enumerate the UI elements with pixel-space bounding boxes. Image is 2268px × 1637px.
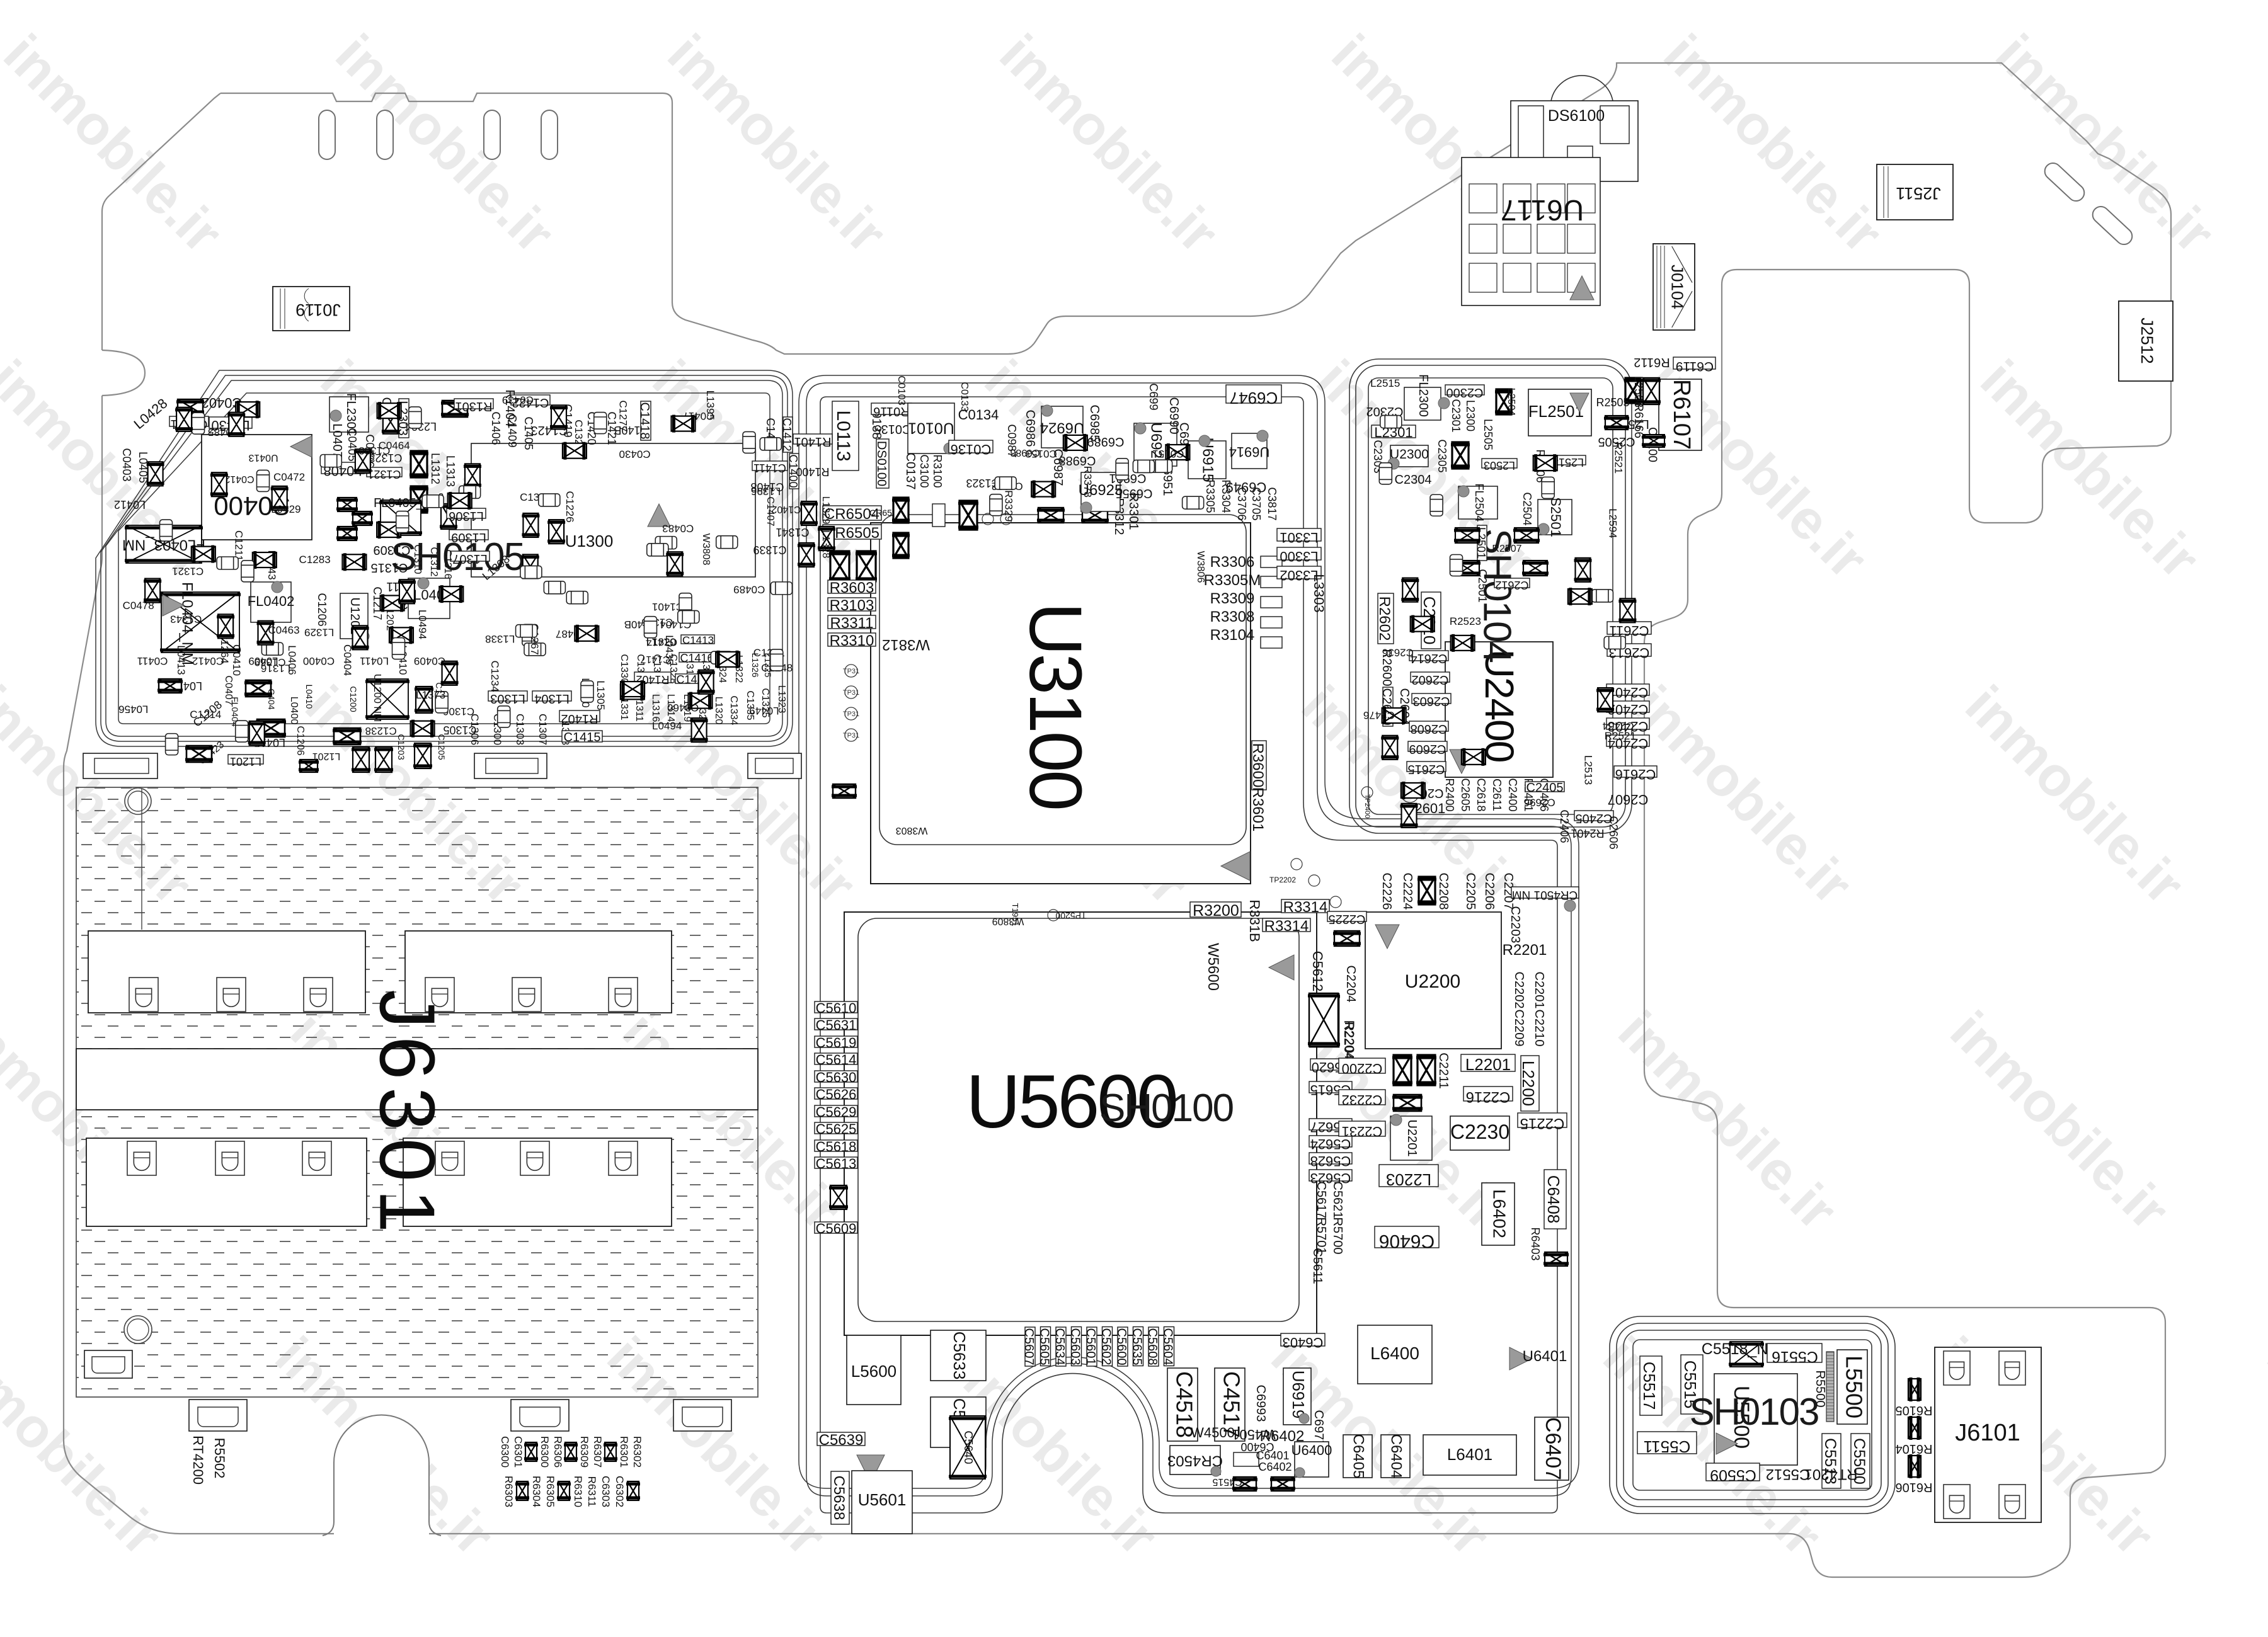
svg-text:R1401: R1401 xyxy=(794,435,832,448)
svg-text:C0133: C0133 xyxy=(959,382,970,411)
svg-text:L1395: L1395 xyxy=(704,391,716,420)
svg-text:C5633: C5633 xyxy=(950,1332,969,1380)
svg-text:C1309: C1309 xyxy=(374,543,411,557)
svg-text:R6310: R6310 xyxy=(572,1476,584,1507)
svg-text:L0494: L0494 xyxy=(652,720,682,732)
svg-text:C1312: C1312 xyxy=(428,547,439,576)
svg-text:C1315: C1315 xyxy=(371,561,408,574)
svg-text:R3309: R3309 xyxy=(1210,590,1255,607)
svg-text:R3200: R3200 xyxy=(1193,902,1239,920)
svg-text:C0103: C0103 xyxy=(896,375,907,405)
svg-text:C2636: C2636 xyxy=(1382,646,1414,658)
svg-text:C404: C404 xyxy=(266,688,277,710)
svg-text:R3329: R3329 xyxy=(1002,490,1014,522)
svg-text:DS0100: DS0100 xyxy=(874,441,888,486)
svg-text:C2400: C2400 xyxy=(1506,778,1519,811)
svg-text:C2224: C2224 xyxy=(1400,873,1414,910)
svg-text:C2607: C2607 xyxy=(1608,792,1649,807)
svg-text:C2605: C2605 xyxy=(1459,778,1472,811)
svg-text:C2231: C2231 xyxy=(1342,1124,1383,1139)
svg-text:C2202: C2202 xyxy=(1512,972,1526,1009)
svg-text:C2215: C2215 xyxy=(1520,1115,1565,1132)
svg-text:C3100: C3100 xyxy=(918,454,931,488)
svg-text:C2616: C2616 xyxy=(1615,767,1656,782)
svg-text:R5700: R5700 xyxy=(1331,1218,1344,1255)
svg-text:C5628: C5628 xyxy=(1310,1153,1351,1169)
svg-text:C3706: C3706 xyxy=(1235,487,1248,520)
svg-text:L2200: L2200 xyxy=(1519,1061,1538,1106)
svg-text:C6406: C6406 xyxy=(1379,1231,1435,1252)
svg-text:R2523: R2523 xyxy=(1450,615,1481,627)
svg-text:U6914: U6914 xyxy=(1229,444,1270,460)
svg-text:FL2300: FL2300 xyxy=(1416,374,1430,417)
svg-text:R1400: R1400 xyxy=(796,465,829,478)
svg-text:L0429: L0429 xyxy=(271,503,301,515)
svg-text:C0460: C0460 xyxy=(667,702,699,714)
svg-text:C2304: C2304 xyxy=(1395,473,1432,487)
svg-text:R2204: R2204 xyxy=(1342,1022,1356,1059)
svg-text:C1409: C1409 xyxy=(506,414,518,447)
svg-text:C2501: C2501 xyxy=(1476,569,1489,602)
svg-text:R6309: R6309 xyxy=(578,1436,590,1468)
svg-text:C5640: C5640 xyxy=(962,1430,975,1464)
svg-text:TP5200: TP5200 xyxy=(1055,911,1086,921)
svg-text:W3812: W3812 xyxy=(882,636,930,653)
svg-text:R5502: R5502 xyxy=(212,1438,227,1479)
svg-text:C0463: C0463 xyxy=(268,624,299,636)
svg-text:R3378: R3378 xyxy=(1082,466,1094,498)
svg-text:C2602: C2602 xyxy=(1412,673,1449,687)
svg-text:C6404: C6404 xyxy=(1388,1434,1405,1479)
svg-text:C2209: C2209 xyxy=(1512,1010,1526,1047)
svg-text:R2201: R2201 xyxy=(1503,942,1547,959)
svg-text:C1214: C1214 xyxy=(190,709,221,721)
svg-text:L1309: L1309 xyxy=(451,530,486,544)
svg-text:C0439: C0439 xyxy=(502,394,534,406)
svg-text:C4515: C4515 xyxy=(1212,1476,1242,1487)
svg-text:C1310: C1310 xyxy=(412,544,423,574)
svg-text:C6993: C6993 xyxy=(1254,1385,1268,1422)
svg-text:C6401: C6401 xyxy=(1256,1449,1289,1462)
svg-text:TP2202: TP2202 xyxy=(1269,876,1296,884)
svg-text:R6303: R6303 xyxy=(503,1476,515,1507)
svg-text:C2618: C2618 xyxy=(1475,778,1487,811)
svg-text:L1329: L1329 xyxy=(820,496,831,525)
svg-text:L1201: L1201 xyxy=(312,751,341,761)
svg-text:J6101: J6101 xyxy=(1955,1420,2020,1446)
svg-text:C2405: C2405 xyxy=(1576,811,1613,825)
svg-text:C6407: C6407 xyxy=(1541,1417,1565,1480)
svg-text:C2203: C2203 xyxy=(1508,906,1522,944)
svg-text:L2201: L2201 xyxy=(1465,1055,1511,1074)
svg-text:R6311: R6311 xyxy=(586,1476,598,1507)
svg-text:C0151: C0151 xyxy=(1152,448,1184,460)
svg-text:C2230: C2230 xyxy=(1450,1121,1509,1143)
svg-text:R6305: R6305 xyxy=(544,1476,556,1507)
svg-text:C2201: C2201 xyxy=(1532,972,1546,1009)
svg-text:C5602: C5602 xyxy=(1099,1328,1113,1366)
svg-text:C0430: C0430 xyxy=(619,448,651,460)
svg-text:L0412: L0412 xyxy=(114,498,146,511)
svg-text:L6401: L6401 xyxy=(1447,1445,1492,1464)
svg-text:C1205: C1205 xyxy=(437,734,447,760)
svg-text:C0411: C0411 xyxy=(137,655,168,667)
svg-text:C2612: C2612 xyxy=(1495,579,1528,591)
svg-text:C6947: C6947 xyxy=(1230,389,1278,408)
svg-text:C1206: C1206 xyxy=(316,593,328,626)
svg-text:L2505: L2505 xyxy=(1482,419,1494,450)
svg-text:R6300: R6300 xyxy=(539,1436,551,1468)
svg-text:C5621: C5621 xyxy=(1331,1182,1344,1219)
svg-text:DS6100: DS6100 xyxy=(1548,107,1605,125)
svg-text:U2200: U2200 xyxy=(1405,971,1460,992)
svg-text:C1413: C1413 xyxy=(682,634,714,646)
svg-text:C2200: C2200 xyxy=(1342,1061,1383,1076)
svg-text:C0410: C0410 xyxy=(231,644,243,676)
svg-text:C5512: C5512 xyxy=(1766,1466,1811,1483)
svg-text:C1206: C1206 xyxy=(295,726,306,755)
svg-text:C5631: C5631 xyxy=(816,1017,857,1033)
svg-text:C1316: C1316 xyxy=(442,549,453,579)
svg-text:TP31: TP31 xyxy=(843,668,859,675)
svg-text:C6955: C6955 xyxy=(1116,486,1153,500)
svg-text:C1339: C1339 xyxy=(753,544,786,556)
svg-text:R1301: R1301 xyxy=(455,399,493,413)
svg-text:FL2504: FL2504 xyxy=(1473,483,1486,522)
svg-text:TP2400: TP2400 xyxy=(1363,794,1371,819)
svg-text:C5617: C5617 xyxy=(1314,1182,1328,1219)
svg-text:C5626: C5626 xyxy=(816,1087,857,1102)
svg-text:R3305: R3305 xyxy=(1204,479,1217,513)
svg-text:C3817: C3817 xyxy=(1266,487,1278,520)
svg-text:R3314: R3314 xyxy=(1264,918,1309,935)
svg-text:C0404: C0404 xyxy=(341,644,353,676)
svg-text:R6104: R6104 xyxy=(1896,1442,1933,1456)
svg-text:C5625: C5625 xyxy=(816,1121,857,1137)
svg-text:R2521: R2521 xyxy=(1612,442,1624,474)
svg-text:C5618: C5618 xyxy=(816,1139,857,1155)
svg-text:J0104: J0104 xyxy=(1668,265,1687,309)
svg-text:C0400: C0400 xyxy=(303,655,335,667)
svg-text:R3601: R3601 xyxy=(1249,787,1266,832)
svg-text:L2300: L2300 xyxy=(1464,400,1477,431)
svg-text:C2205: C2205 xyxy=(1463,873,1477,910)
svg-text:C5635: C5635 xyxy=(1130,1328,1144,1366)
svg-text:R3311: R3311 xyxy=(830,615,874,632)
svg-text:R6112: R6112 xyxy=(1634,355,1669,369)
svg-text:C1226: C1226 xyxy=(564,491,576,522)
svg-text:L1338: L1338 xyxy=(485,633,515,645)
svg-text:R2521: R2521 xyxy=(1605,730,1636,742)
svg-text:L1313: L1313 xyxy=(444,455,457,487)
svg-text:C0483: C0483 xyxy=(662,523,694,535)
svg-text:L2513: L2513 xyxy=(1582,755,1594,785)
svg-text:R3100: R3100 xyxy=(931,454,944,488)
svg-text:L1304: L1304 xyxy=(534,692,570,705)
svg-text:L2504: L2504 xyxy=(1506,388,1516,416)
svg-text:C1321: C1321 xyxy=(367,468,401,481)
svg-text:C0412: C0412 xyxy=(224,474,254,484)
svg-text:C5604: C5604 xyxy=(1161,1328,1175,1366)
svg-text:C5634: C5634 xyxy=(1053,1328,1067,1366)
svg-text:U1300: U1300 xyxy=(565,532,614,550)
svg-text:C1406: C1406 xyxy=(490,411,502,445)
svg-text:R6304: R6304 xyxy=(530,1476,542,1507)
svg-text:C5517: C5517 xyxy=(1640,1362,1659,1410)
svg-text:C2208: C2208 xyxy=(1436,873,1450,910)
svg-text:L3300: L3300 xyxy=(1280,549,1318,564)
svg-text:RT4201: RT4201 xyxy=(1804,1466,1858,1483)
svg-text:C0136: C0136 xyxy=(951,442,992,457)
svg-text:C6302: C6302 xyxy=(614,1476,626,1507)
svg-text:C5601: C5601 xyxy=(1084,1328,1097,1366)
svg-text:L1373: L1373 xyxy=(416,689,445,701)
svg-text:L2203: L2203 xyxy=(1386,1170,1431,1189)
svg-text:R2602: R2602 xyxy=(1376,596,1393,641)
svg-text:RT4200: RT4200 xyxy=(190,1435,206,1485)
svg-text:L1329: L1329 xyxy=(304,626,334,638)
svg-text:C1283: C1283 xyxy=(299,554,331,566)
svg-text:C1415: C1415 xyxy=(564,731,601,744)
svg-text:L1328: L1328 xyxy=(820,530,831,559)
svg-text:C699: C699 xyxy=(1147,383,1160,410)
svg-text:C0135: C0135 xyxy=(874,422,912,436)
svg-text:U0101: U0101 xyxy=(908,419,954,436)
svg-text:U6919: U6919 xyxy=(1289,1371,1308,1419)
svg-text:C0153: C0153 xyxy=(1026,448,1057,460)
svg-text:L1306: L1306 xyxy=(449,509,484,523)
svg-text:R5500: R5500 xyxy=(1813,1371,1827,1408)
svg-text:L1201: L1201 xyxy=(230,755,261,768)
svg-text:R6306: R6306 xyxy=(552,1436,564,1468)
svg-text:U6400: U6400 xyxy=(1291,1442,1332,1458)
svg-text:C6402: C6402 xyxy=(1258,1461,1291,1473)
svg-text:L0449: L0449 xyxy=(749,705,779,717)
svg-text:L1312: L1312 xyxy=(429,453,442,484)
svg-text:L0400: L0400 xyxy=(289,697,299,725)
svg-text:C5600: C5600 xyxy=(1114,1328,1128,1366)
svg-text:C5605: C5605 xyxy=(1038,1328,1051,1366)
svg-text:C5509: C5509 xyxy=(1710,1466,1756,1484)
svg-text:U6117: U6117 xyxy=(1501,194,1584,227)
svg-text:U5601: U5601 xyxy=(858,1490,907,1509)
svg-text:C1341: C1341 xyxy=(776,526,809,539)
svg-text:CR65: CR65 xyxy=(869,508,892,518)
svg-text:L1396: L1396 xyxy=(751,486,781,498)
svg-text:L1303: L1303 xyxy=(490,692,525,705)
svg-text:C1238: C1238 xyxy=(365,725,397,737)
svg-text:L2515: L2515 xyxy=(1370,377,1400,389)
svg-text:C5603: C5603 xyxy=(1068,1328,1082,1366)
svg-text:J0119: J0119 xyxy=(295,300,341,319)
svg-text:C2216: C2216 xyxy=(1466,1088,1511,1105)
svg-text:C2406: C2406 xyxy=(1558,809,1571,843)
svg-text:C5611: C5611 xyxy=(1310,1248,1324,1284)
svg-text:C2405: C2405 xyxy=(1526,781,1564,795)
svg-text:C2615: C2615 xyxy=(1408,762,1445,776)
svg-text:L2508: L2508 xyxy=(1632,376,1645,408)
svg-text:C5613: C5613 xyxy=(816,1156,857,1172)
svg-text:R6307: R6307 xyxy=(592,1436,604,1468)
svg-text:R3603: R3603 xyxy=(830,579,874,596)
svg-text:C0472: C0472 xyxy=(273,471,305,483)
svg-text:C1412: C1412 xyxy=(781,418,793,451)
svg-text:U6401: U6401 xyxy=(1523,1348,1567,1365)
svg-text:C5516: C5516 xyxy=(1772,1348,1818,1366)
svg-text:L3301: L3301 xyxy=(1280,530,1318,545)
svg-text:C5608: C5608 xyxy=(1145,1328,1159,1366)
svg-text:R3308: R3308 xyxy=(1210,608,1255,625)
svg-text:L1307: L1307 xyxy=(452,552,488,566)
svg-text:R3314: R3314 xyxy=(1283,899,1328,916)
svg-text:C5630: C5630 xyxy=(816,1069,857,1085)
svg-text:L1305: L1305 xyxy=(595,680,607,710)
svg-text:C2225: C2225 xyxy=(1329,912,1366,926)
svg-text:R3600: R3600 xyxy=(1249,743,1266,788)
svg-text:C2210: C2210 xyxy=(1532,1010,1546,1047)
svg-text:C6408: C6408 xyxy=(1544,1175,1563,1224)
svg-text:R1402: R1402 xyxy=(561,712,598,726)
svg-text:R2507: R2507 xyxy=(1492,544,1521,554)
svg-text:C5609: C5609 xyxy=(816,1221,857,1236)
svg-text:C1343: C1343 xyxy=(170,613,202,625)
svg-text:C0403: C0403 xyxy=(120,448,133,481)
svg-text:R3104: R3104 xyxy=(1210,627,1255,644)
svg-text:L0413: L0413 xyxy=(175,645,187,675)
svg-text:U0413: U0413 xyxy=(248,452,278,463)
svg-text:C1277: C1277 xyxy=(617,401,629,432)
svg-text:L3303: L3303 xyxy=(1311,574,1327,612)
svg-text:C5639: C5639 xyxy=(819,1432,864,1449)
svg-text:C2608: C2608 xyxy=(1411,722,1448,736)
svg-text:C2211: C2211 xyxy=(1436,1052,1450,1088)
svg-text:L0435: L0435 xyxy=(663,635,675,664)
svg-text:TP31: TP31 xyxy=(843,689,859,697)
svg-text:C6989: C6989 xyxy=(1087,435,1125,448)
svg-text:TP31: TP31 xyxy=(843,732,859,739)
svg-text:C2609: C2609 xyxy=(1409,742,1446,756)
svg-text:W4501: W4501 xyxy=(1232,1427,1276,1442)
svg-text:U2400: U2400 xyxy=(1477,649,1522,762)
svg-text:L0410: L0410 xyxy=(304,685,314,709)
svg-text:L1320: L1320 xyxy=(713,697,724,725)
svg-text:L5600: L5600 xyxy=(851,1362,896,1381)
svg-text:R6106: R6106 xyxy=(1896,1480,1933,1494)
svg-text:C1416: C1416 xyxy=(680,652,713,664)
svg-text:U6924: U6924 xyxy=(1040,419,1085,436)
svg-text:C0409: C0409 xyxy=(414,655,445,667)
svg-text:J6301: J6301 xyxy=(363,990,450,1240)
svg-text:R331B: R331B xyxy=(1247,899,1263,942)
svg-text:W4500: W4500 xyxy=(1191,1425,1235,1440)
svg-text:C2301: C2301 xyxy=(1450,399,1462,432)
svg-text:CR4501 NM: CR4501 NM xyxy=(1512,888,1578,901)
svg-text:C5614: C5614 xyxy=(816,1052,857,1068)
svg-text:R3306: R3306 xyxy=(1210,554,1255,571)
svg-text:C2300: C2300 xyxy=(1446,385,1484,399)
svg-text:C1411: C1411 xyxy=(753,462,786,474)
svg-text:C1305: C1305 xyxy=(443,724,476,736)
svg-text:L0113: L0113 xyxy=(833,410,854,461)
svg-text:C3705: C3705 xyxy=(1250,487,1263,520)
svg-text:T1951: T1951 xyxy=(1011,903,1020,927)
svg-text:L1316: L1316 xyxy=(261,662,290,674)
svg-text:R6403: R6403 xyxy=(1529,1227,1542,1260)
svg-text:L0456: L0456 xyxy=(118,703,148,715)
svg-text:C6405: C6405 xyxy=(1350,1434,1367,1479)
svg-text:R2401: R2401 xyxy=(1571,827,1604,840)
svg-text:J2512: J2512 xyxy=(2138,317,2156,364)
svg-text:C6119: C6119 xyxy=(1676,359,1714,374)
svg-text:C6986: C6986 xyxy=(1023,410,1037,447)
svg-text:TP31: TP31 xyxy=(843,710,859,718)
svg-text:C5612: C5612 xyxy=(1310,951,1326,992)
svg-text:C2232: C2232 xyxy=(1342,1092,1383,1108)
svg-text:J2511: J2511 xyxy=(1896,184,1941,203)
svg-text:R3103: R3103 xyxy=(830,597,874,614)
svg-text:SH0100: SH0100 xyxy=(1099,1087,1234,1130)
svg-text:C1402: C1402 xyxy=(771,504,801,515)
svg-text:R3305M: R3305M xyxy=(1204,572,1261,589)
svg-text:R6105: R6105 xyxy=(1896,1403,1933,1417)
svg-text:R6107: R6107 xyxy=(1668,379,1695,450)
svg-text:C5619: C5619 xyxy=(816,1035,857,1051)
svg-text:W3808: W3808 xyxy=(701,533,711,566)
svg-text:FL0402: FL0402 xyxy=(248,593,295,609)
svg-text:C6403: C6403 xyxy=(1283,1335,1324,1350)
svg-text:L1316: L1316 xyxy=(650,694,661,722)
svg-text:R2400: R2400 xyxy=(1443,778,1456,811)
svg-text:S2501: S2501 xyxy=(1548,497,1564,537)
svg-text:C1418: C1418 xyxy=(638,402,651,440)
svg-text:C0137: C0137 xyxy=(903,453,917,490)
svg-text:C1334: C1334 xyxy=(728,695,739,725)
svg-text:C5610: C5610 xyxy=(816,1000,857,1016)
svg-text:C2614: C2614 xyxy=(1411,651,1448,665)
svg-text:R2505: R2505 xyxy=(1596,396,1629,409)
svg-text:C1203: C1203 xyxy=(396,734,406,760)
svg-text:C2226: C2226 xyxy=(1380,873,1394,910)
svg-text:L0407: L0407 xyxy=(330,423,344,459)
svg-text:W3803: W3803 xyxy=(896,825,928,836)
svg-text:C1321: C1321 xyxy=(172,566,203,578)
svg-text:C5511: C5511 xyxy=(1644,1437,1691,1456)
svg-text:SH0103: SH0103 xyxy=(1690,1391,1819,1433)
svg-text:C6300: C6300 xyxy=(499,1436,511,1468)
svg-text:C2476: C2476 xyxy=(1363,709,1395,721)
svg-text:L0494: L0494 xyxy=(416,610,428,639)
svg-text:C1200: C1200 xyxy=(348,686,358,712)
svg-text:C6303: C6303 xyxy=(600,1476,612,1507)
svg-text:L6400: L6400 xyxy=(1370,1343,1419,1363)
svg-text:C2504: C2504 xyxy=(1521,492,1533,525)
svg-text:C2305: C2305 xyxy=(1436,439,1448,472)
svg-text:C5607: C5607 xyxy=(1022,1328,1036,1366)
svg-text:C1303: C1303 xyxy=(514,714,526,745)
svg-text:C1234: C1234 xyxy=(489,661,501,692)
svg-text:C1330: C1330 xyxy=(619,654,629,683)
svg-text:R6301: R6301 xyxy=(618,1436,630,1468)
svg-text:C2606: C2606 xyxy=(1607,816,1620,849)
svg-text:L2594: L2594 xyxy=(1607,508,1619,538)
svg-text:U1200 NM: U1200 NM xyxy=(372,674,382,722)
svg-text:C0464: C0464 xyxy=(379,440,410,452)
svg-text:L0411: L0411 xyxy=(360,655,389,667)
svg-text:R3304: R3304 xyxy=(1220,479,1232,513)
svg-text:L6402: L6402 xyxy=(1490,1189,1509,1238)
svg-text:U2201: U2201 xyxy=(1405,1120,1419,1157)
svg-text:C6990: C6990 xyxy=(1167,397,1181,435)
